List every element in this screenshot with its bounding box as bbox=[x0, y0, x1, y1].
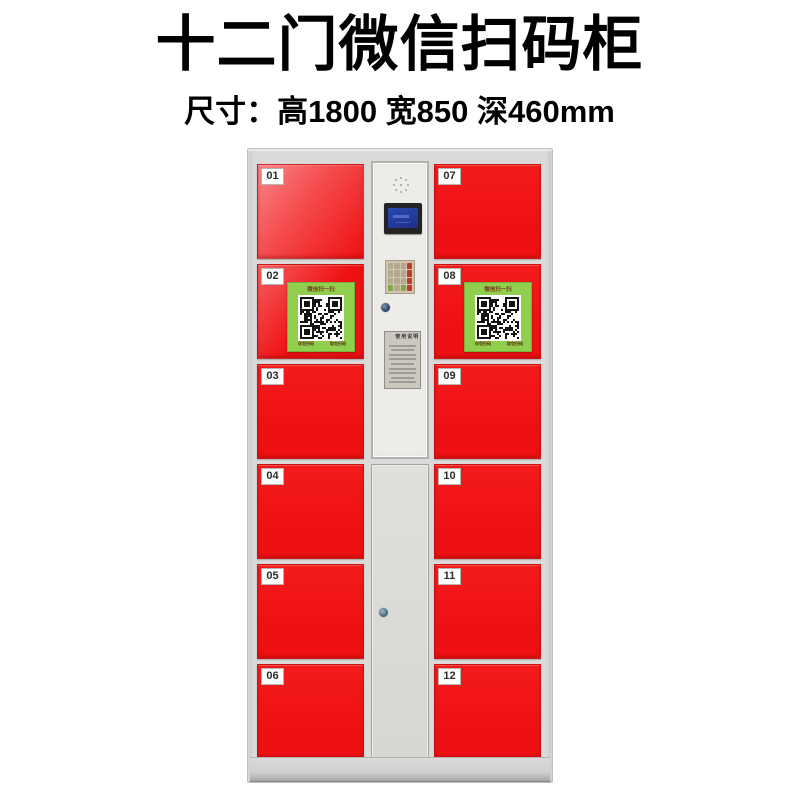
keyhole-icon bbox=[379, 608, 388, 617]
door-number-label: 07 bbox=[438, 168, 461, 185]
left-door-column: 01 02 微信扫一扫 存包扫码 取包扫码 03 04 bbox=[257, 164, 364, 764]
door-number-label: 11 bbox=[438, 568, 461, 585]
product-image: 十二门微信扫码柜 尺寸：高1800 宽850 深460mm 01 02 微信扫一… bbox=[0, 0, 799, 799]
locker-door-01: 01 bbox=[257, 164, 364, 259]
instruction-sticker: 使用说明 bbox=[384, 331, 421, 389]
door-number-label: 01 bbox=[261, 168, 284, 185]
locker-door-12: 12 bbox=[434, 664, 541, 759]
door-number-label: 06 bbox=[261, 668, 284, 685]
door-number-label: 02 bbox=[261, 268, 284, 285]
right-door-column: 07 08 微信扫一扫 存包扫码 取包扫码 09 10 bbox=[434, 164, 541, 764]
door-number-label: 03 bbox=[261, 368, 284, 385]
locker-door-05: 05 bbox=[257, 564, 364, 659]
locker-door-04: 04 bbox=[257, 464, 364, 559]
locker-door-08: 08 微信扫一扫 存包扫码 取包扫码 bbox=[434, 264, 541, 359]
control-panel: 使用说明 bbox=[371, 161, 429, 459]
door-number-label: 12 bbox=[438, 668, 461, 685]
qr-code-icon bbox=[475, 295, 521, 341]
door-number-label: 08 bbox=[438, 268, 461, 285]
wechat-qr-sticker: 微信扫一扫 存包扫码 取包扫码 bbox=[464, 282, 532, 352]
cabinet-base bbox=[250, 757, 550, 782]
qr-sticker-top-label: 微信扫一扫 bbox=[303, 287, 339, 293]
locker-door-03: 03 bbox=[257, 364, 364, 459]
qr-sticker-bottom-labels: 存包扫码 取包扫码 bbox=[465, 342, 531, 350]
door-number-label: 04 bbox=[261, 468, 284, 485]
control-column: 使用说明 bbox=[371, 161, 429, 762]
locker-door-07: 07 bbox=[434, 164, 541, 259]
locker-door-06: 06 bbox=[257, 664, 364, 759]
dimensions-text: 尺寸：高1800 宽850 深460mm bbox=[0, 86, 799, 131]
door-number-label: 10 bbox=[438, 468, 461, 485]
locker-door-02: 02 微信扫一扫 存包扫码 取包扫码 bbox=[257, 264, 364, 359]
speaker-grille-icon bbox=[392, 176, 410, 194]
numeric-keypad bbox=[385, 260, 415, 294]
qr-code-icon bbox=[298, 295, 344, 341]
locker-door-10: 10 bbox=[434, 464, 541, 559]
qr-bottom-left-label: 存包扫码 bbox=[298, 342, 314, 346]
locker-door-09: 09 bbox=[434, 364, 541, 459]
lcd-display bbox=[384, 203, 422, 234]
qr-sticker-top-label: 微信扫一扫 bbox=[480, 287, 516, 293]
center-service-door bbox=[371, 464, 429, 762]
round-lock-icon bbox=[381, 303, 390, 312]
qr-sticker-bottom-labels: 存包扫码 取包扫码 bbox=[288, 342, 354, 350]
locker-cabinet: 01 02 微信扫一扫 存包扫码 取包扫码 03 04 bbox=[247, 148, 553, 783]
instruction-sticker-title: 使用说明 bbox=[395, 335, 410, 339]
wechat-qr-sticker: 微信扫一扫 存包扫码 取包扫码 bbox=[287, 282, 355, 352]
door-number-label: 05 bbox=[261, 568, 284, 585]
qr-bottom-right-label: 取包扫码 bbox=[507, 342, 523, 346]
door-number-label: 09 bbox=[438, 368, 461, 385]
page-title: 十二门微信扫码柜 bbox=[0, 10, 799, 80]
locker-door-11: 11 bbox=[434, 564, 541, 659]
qr-bottom-left-label: 存包扫码 bbox=[475, 342, 491, 346]
lcd-screen bbox=[388, 208, 418, 228]
qr-bottom-right-label: 取包扫码 bbox=[330, 342, 346, 346]
